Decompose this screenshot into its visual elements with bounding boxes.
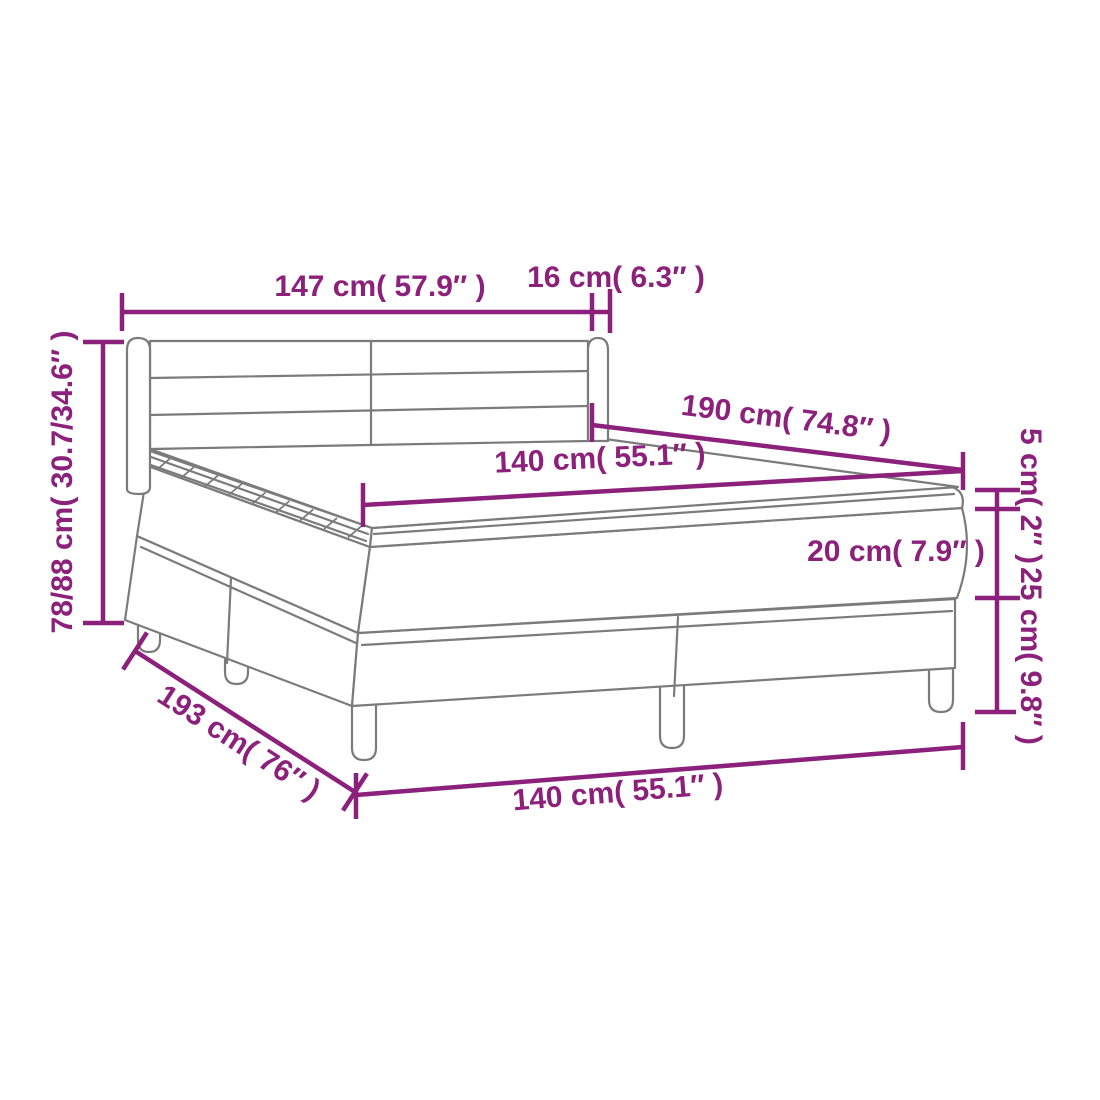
dim-total-height: 78/88 cm( 30.7/34.6″ ) xyxy=(46,331,124,634)
headboard-face xyxy=(150,341,588,449)
bed-leg xyxy=(352,700,376,760)
topper-thickness-label: 5 cm( 2″ ) xyxy=(1014,428,1047,564)
base-length-label: 193 cm( 76″ ) xyxy=(152,679,326,807)
bed-leg xyxy=(660,680,684,748)
dim-headboard-width: 147 cm( 57.9″ ) 16 cm( 6.3″ ) xyxy=(122,261,705,333)
mattress-thickness-label: 20 cm( 7.9″ ) xyxy=(807,535,985,568)
base-height-label: 25 cm( 9.8″ ) xyxy=(1014,567,1047,745)
headboard-side-depth-label: 16 cm( 6.3″ ) xyxy=(527,261,705,294)
total-height-label: 78/88 cm( 30.7/34.6″ ) xyxy=(46,331,79,634)
headboard-left-post xyxy=(127,338,150,494)
dimension-diagram: 147 cm( 57.9″ ) 16 cm( 6.3″ ) 78/88 cm( … xyxy=(0,0,1100,1100)
bed-dimension-drawing: 147 cm( 57.9″ ) 16 cm( 6.3″ ) 78/88 cm( … xyxy=(0,0,1100,1100)
headboard-width-label: 147 cm( 57.9″ ) xyxy=(274,270,485,303)
base-width-label: 140 cm( 55.1″ ) xyxy=(511,768,724,818)
